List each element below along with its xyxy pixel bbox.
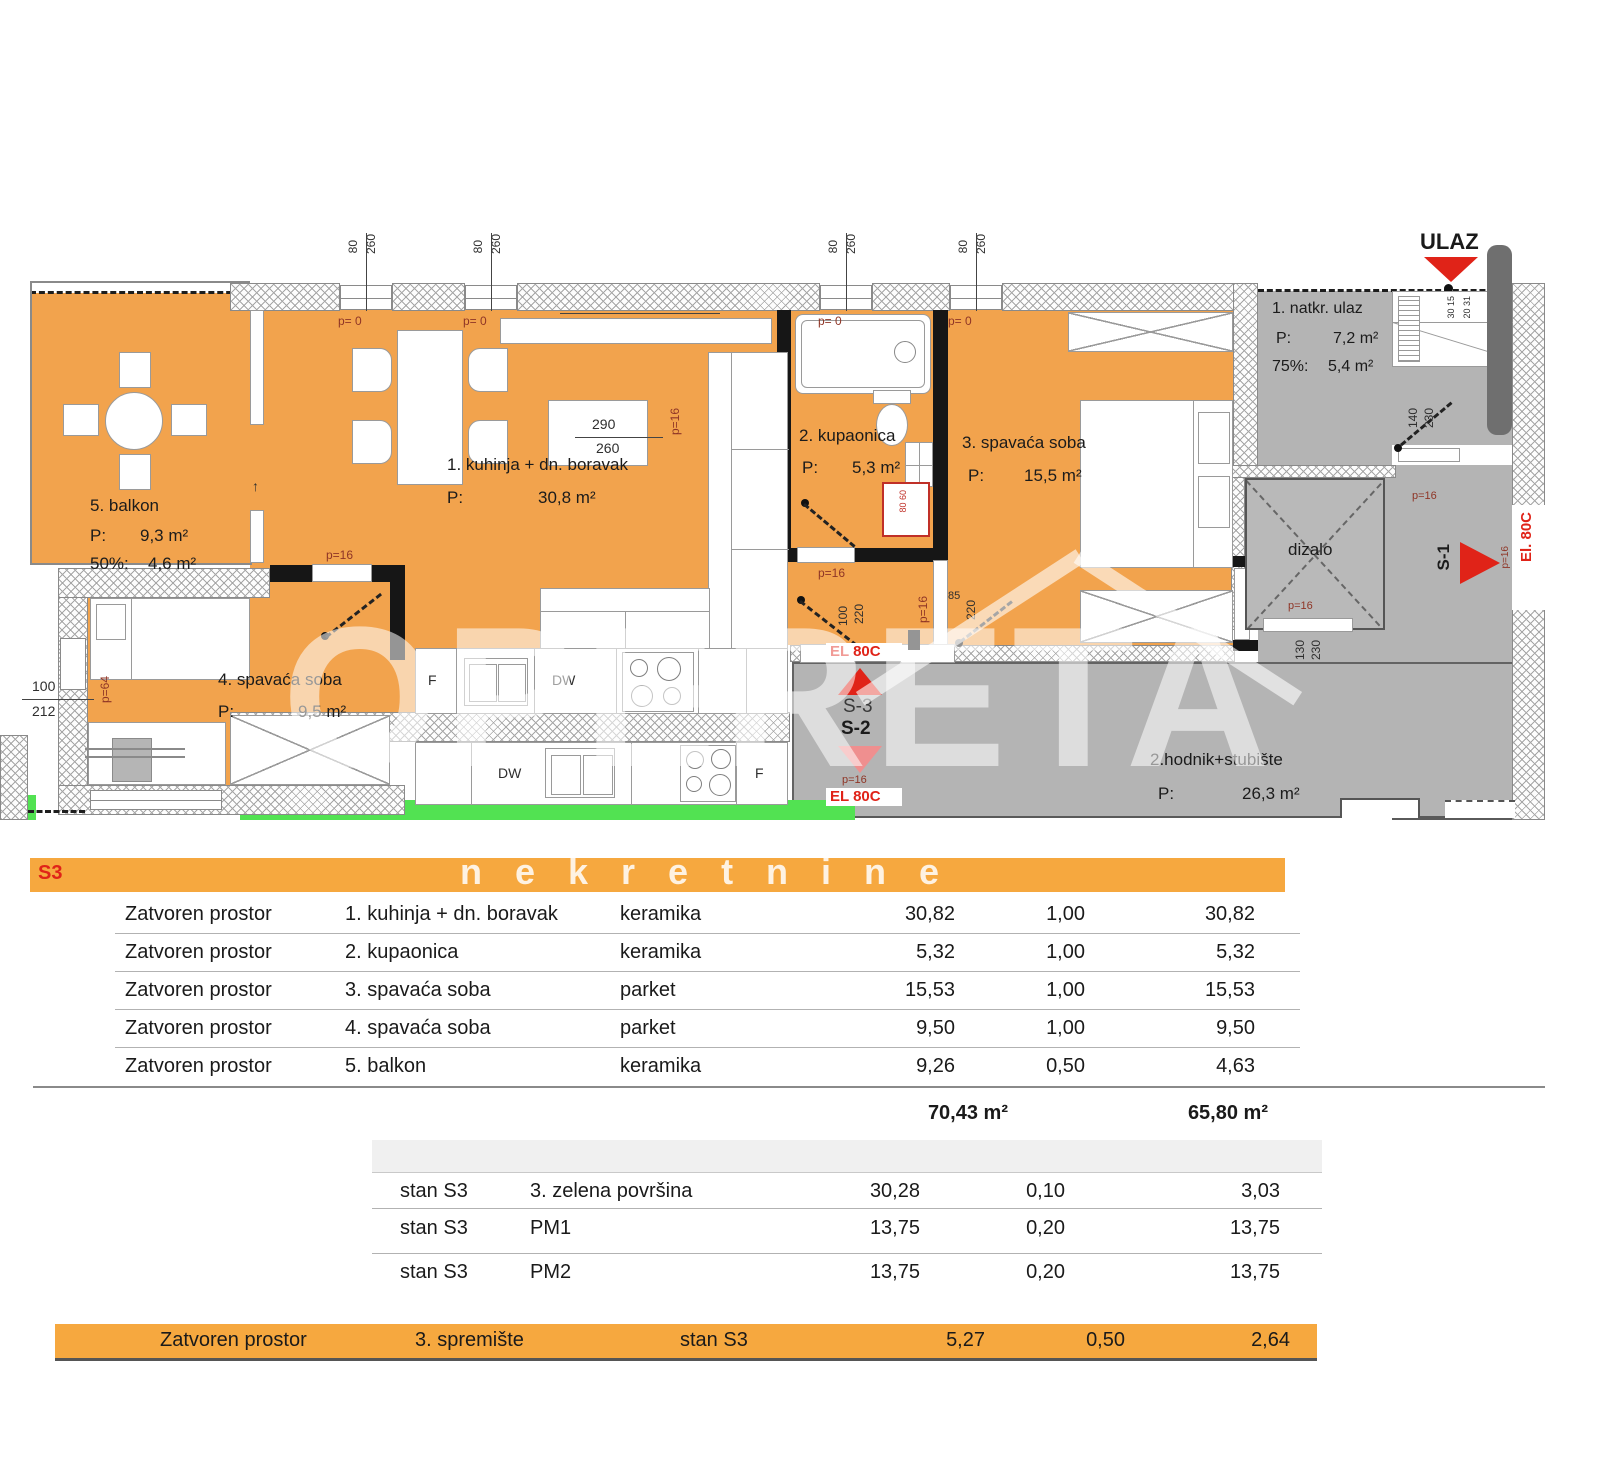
balcony-door-wall-top [250,310,264,425]
entry-pct-area: 5,4 m² [1328,358,1373,376]
area-table: S3 nekretnine Zatvoren prostor 1. kuhinj… [0,835,1600,1478]
wall-neighbor-left [0,735,28,820]
dim-w3-260: 260 [844,234,858,254]
dim-260b: 260 [596,440,619,456]
window-bedroom4-bottom [90,790,222,810]
balcony-table [105,392,163,450]
extra-area: 13,75 [760,1217,920,1240]
storage-name: 3. spremište [415,1329,524,1352]
bath-sink [905,442,933,487]
extra-sep [372,1208,1322,1209]
bed3-name: 3. spavaća soba [962,433,1086,453]
extra-result: 3,03 [1120,1180,1280,1203]
entry-pct: 75%: [1272,358,1308,376]
bed4-pillow [96,604,126,640]
window-bedroom4-left [60,638,86,690]
dining-chair-2 [352,420,392,464]
storage-zone: Zatvoren prostor [160,1329,307,1352]
row-result: 9,50 [1095,1017,1255,1040]
dim-140-entry: 140 [1406,408,1420,428]
balcony-door-arrow: ↑ [252,478,259,494]
neighbor-dash [28,810,85,813]
dining-chair-3 [468,348,508,392]
table-header-label: S3 [38,862,62,885]
storage-result: 2,64 [1130,1329,1290,1352]
dim-w3-80: 80 [826,240,840,253]
row-material: parket [620,1017,676,1040]
elevator-door-leaf [1263,618,1353,632]
row-result: 4,63 [1095,1055,1255,1078]
dim-w1-80: 80 [346,240,360,253]
dining-chair-1 [352,348,392,392]
row-coef: 1,00 [925,1017,1085,1040]
dim-p16-bed4door: p=16 [326,548,353,562]
balcony-p: P: [90,526,106,546]
row-coef: 1,00 [925,979,1085,1002]
ulaz-label: ULAZ [1420,229,1479,255]
extra-coef: 0,20 [905,1217,1065,1240]
wall-lift-top [1231,465,1396,478]
row-zone: Zatvoren prostor [125,1055,272,1078]
dim-212: 212 [32,703,55,719]
washing-machine: 80 60 [882,482,930,537]
floor-plan: ↑ dizalo 30 15 20 31 ULAZ [0,0,1600,835]
dim-w1-260: 260 [364,234,378,254]
kitchen-name: 1. kuhinja + dn. boravak [447,455,628,475]
balcony-name: 5. balkon [90,496,159,516]
ulaz-arrow-icon [1424,257,1478,282]
dim-w4-260: 260 [974,234,988,254]
entry-step-dim-a: 30 15 [1446,296,1456,319]
storage-area: 5,27 [825,1329,985,1352]
bed4-chair [112,738,152,782]
balcony-pct-area: 4,6 m² [148,554,196,574]
extra-sep [372,1253,1322,1254]
row-zone: Zatvoren prostor [125,979,272,1002]
bath-name: 2. kupaonica [799,426,895,446]
bed4-door-gap [312,564,372,582]
dim-230-lift: 230 [1309,640,1323,660]
row-sep [115,933,1300,934]
extra-name: 3. zelena površina [530,1180,692,1203]
extra-name: PM2 [530,1261,571,1284]
balcony-pct: 50%: [90,554,129,574]
wall-top-2 [392,283,465,311]
bed4-desk [88,722,226,785]
bed3-wardrobe-top [1068,312,1233,352]
wall-top-4 [872,283,950,311]
bed3-pillow-1 [1198,412,1230,464]
wall-top-1 [230,283,340,311]
entry-area: 7,2 m² [1333,330,1378,348]
row-result: 5,32 [1095,941,1255,964]
storage-coef: 0,50 [965,1329,1125,1352]
stair-exit-window [1445,800,1515,818]
bath-p: P: [802,458,818,478]
row-name: 5. balkon [345,1055,426,1078]
row-sep [115,1047,1300,1048]
bath-area: 5,3 m² [852,458,900,478]
extra-result: 13,75 [1120,1217,1280,1240]
bed3-area: 15,5 m² [1024,466,1082,486]
dim-p16-entry: p=16 [1412,490,1437,502]
s1-label: S-1 [1434,544,1454,570]
row-result: 15,53 [1095,979,1255,1002]
balcony-chair-left [63,404,99,436]
entrance-door-leaf [1398,448,1460,462]
dim-w2-80: 80 [471,240,485,253]
dim-p16-balcdoor: p=16 [668,408,682,435]
row-zone: Zatvoren prostor [125,941,272,964]
balcony-top-line [30,281,250,283]
floorplan-page: { "colors":{"room_orange":"#F2A34D","bar… [0,0,1600,1478]
dim-p64: p=64 [98,676,112,703]
extra-area: 13,75 [760,1261,920,1284]
dim-p0-3: p= 0 [818,314,842,328]
row-material: keramika [620,903,701,926]
section-band [372,1140,1322,1173]
entry-p: P: [1276,330,1291,348]
stair-exit-gap [1340,798,1420,818]
watermark-brand: OPERETA [282,598,1276,798]
bathtub [795,314,931,394]
extra-unit: stan S3 [400,1261,468,1284]
elevator-label: dizalo [1288,540,1332,560]
balcony-area: 9,3 m² [140,526,188,546]
row-result: 30,82 [1095,903,1255,926]
tv-line [560,313,720,314]
row-coef: 1,00 [925,903,1085,926]
dim-290-line [575,437,663,438]
row-material: keramika [620,1055,701,1078]
dim-290: 290 [592,416,615,432]
wall-bed3-door-post-a [933,548,948,560]
dim-p16-lift: p=16 [1288,600,1313,612]
balcony-chair-top [119,352,151,388]
balcony-railing-dashed [30,291,250,294]
bed3-p: P: [968,466,984,486]
extra-unit: stan S3 [400,1180,468,1203]
balcony-chair-bottom [119,454,151,490]
dim-p0-4: p= 0 [948,314,972,328]
bed4-p: P: [218,702,234,722]
storage-unit: stan S3 [680,1329,748,1352]
row-name: 4. spavaća soba [345,1017,491,1040]
dim-p16-s1: p=16 [1500,546,1511,569]
row-name: 1. kuhinja + dn. boravak [345,903,558,926]
extra-area: 30,28 [760,1180,920,1203]
kitchen-p: P: [447,488,463,508]
extra-result: 13,75 [1120,1261,1280,1284]
bath-door-gap [797,547,855,563]
row-sep [115,971,1300,972]
toilet [873,390,911,404]
dim-100: 100 [32,678,55,694]
kitchen-area: 30,8 m² [538,488,596,508]
row-name: 2. kupaonica [345,941,458,964]
entry-name: 1. natkr. ulaz [1272,300,1363,318]
total-gross: 70,43 m² [850,1102,1008,1125]
row-name: 3. spavaća soba [345,979,491,1002]
neighbor-rail-2 [85,756,185,758]
balcony-left-wall [30,281,32,565]
neighbor-rail-1 [85,748,185,750]
total-net: 65,80 m² [1108,1102,1268,1125]
el-boc-right: El. 80C [1518,512,1535,562]
dim-130-lift: 130 [1293,640,1307,660]
row-material: keramika [620,941,701,964]
entry-grate [1398,296,1420,362]
extra-unit: stan S3 [400,1217,468,1240]
extra-coef: 0,20 [905,1261,1065,1284]
balcony-chair-right [171,404,207,436]
row-sep [115,1009,1300,1010]
extra-coef: 0,10 [905,1180,1065,1203]
row-material: parket [620,979,676,1002]
row-coef: 1,00 [925,941,1085,964]
balcony-bottom-wall [30,563,252,565]
structural-column [1487,245,1512,435]
s1-arrow-icon [1460,542,1500,584]
watermark-sub: nekretnine [460,851,972,893]
bed3-pillow-2 [1198,476,1230,528]
dim-p0-1: p= 0 [338,314,362,328]
dim-230-entry: 230 [1422,408,1436,428]
balcony-door-wall-bottom [250,510,264,563]
extra-name: PM1 [530,1217,571,1240]
entry-step-dim-b: 20 31 [1462,296,1472,319]
row-coef: 0,50 [925,1055,1085,1078]
sideboard [500,318,772,344]
dim-p16-bathdoor: p=16 [818,566,845,580]
row-sep-strong [33,1086,1545,1088]
dim-p0-2: p= 0 [463,314,487,328]
dim-100-line [22,699,94,700]
row-zone: Zatvoren prostor [125,1017,272,1040]
wall-top-3 [517,283,820,311]
wall-top-5 [1002,283,1255,311]
wall-bath-right [933,310,948,560]
dim-w4-80: 80 [956,240,970,253]
row-zone: Zatvoren prostor [125,903,272,926]
dim-w2-260: 260 [489,234,503,254]
